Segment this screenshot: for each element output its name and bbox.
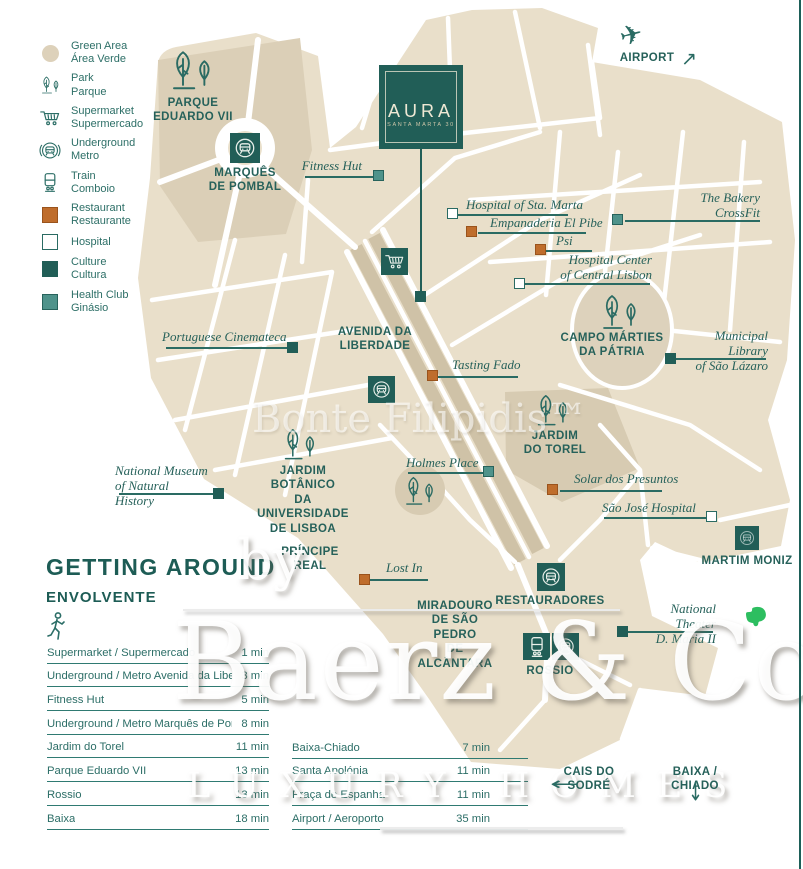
parque-eduardo-trees-icon [166, 50, 218, 95]
poi-label-solar: Solar dos Presuntos [574, 472, 684, 487]
area-label-jardim-botanico: JARDIM BOTÂNICO DA UNIVERSIDADE DE LISBO… [247, 464, 359, 536]
row-time: 7 min [462, 742, 490, 754]
walking-times-table-right: Baixa-Chiado7 min Santa Apolónia11 min P… [292, 735, 528, 830]
green-area-icon [38, 45, 62, 62]
rossio-train-icon [523, 633, 550, 660]
health-club-icon [38, 294, 62, 310]
aura-title: AURA [379, 102, 463, 120]
poi-line [520, 283, 650, 285]
legend-label: Park Parque [62, 72, 106, 98]
row-time: 11 min [457, 789, 490, 801]
walking-person-icon [45, 612, 69, 642]
poi-label-theater: National Theater D. Maria II [630, 602, 716, 647]
legend-item-restaurant: Restaurant Restaurante [38, 202, 178, 228]
torel-trees-icon [532, 394, 574, 430]
legend-item-underground: Underground Metro [38, 137, 178, 163]
restauradores-metro-icon [537, 563, 565, 591]
legend-item-train: Train Comboio [38, 170, 178, 196]
table-row: Underground / Metro Avenida da Liberdade… [47, 664, 269, 688]
legend-item-culture: Culture Cultura [38, 256, 178, 282]
poi-label-empanaderia: Empanaderia El Pibe [490, 216, 610, 231]
getting-around-title: GETTING AROUND [46, 556, 276, 579]
legend: Green Area Área Verde Park Parque Superm… [38, 40, 178, 315]
train-icon [38, 172, 62, 193]
area-label-airport: AIRPORT [614, 51, 680, 65]
area-label-marques-de-pombal: MARQUÊS DE POMBAL [197, 166, 293, 195]
legend-item-green-area: Green Area Área Verde [38, 40, 178, 66]
evernote-icon [744, 605, 768, 631]
poi-marker-empanaderia [466, 226, 477, 237]
area-label-avenida: AVENIDA DA LIBERDADE [299, 325, 451, 354]
poi-marker-sta-marta [447, 208, 458, 219]
supermarket-icon [38, 109, 62, 127]
poi-label-sao-jose: São José Hospital [602, 501, 702, 516]
poi-line [370, 579, 428, 581]
row-time: 5 min [241, 694, 269, 706]
area-label-parque-eduardo: PARQUE EDUARDO VII [138, 96, 248, 125]
row-time: 18 min [235, 813, 269, 825]
row-time: 11 min [236, 741, 269, 753]
poi-label-museum: National Museum of Natural History [115, 464, 211, 509]
principe-real-trees-icon [401, 476, 439, 509]
poi-marker-cinemateca [287, 342, 298, 353]
poi-label-hospital-center: Hospital Center of Central Lisbon [542, 253, 652, 283]
getting-around-subtitle: ENVOLVENTE [46, 590, 157, 605]
row-label: Underground / Metro Avenida da Liberdade [47, 670, 232, 682]
aura-stem-line [420, 149, 422, 293]
row-label: Praça de Espanha [292, 789, 385, 801]
walking-times-table-left: Supermarket / Supermercado1 min Undergro… [47, 640, 269, 830]
row-label: Supermarket / Supermercado [47, 647, 195, 659]
area-label-principe-real: PRÍNCIPE REAL [268, 545, 352, 574]
legend-label: Culture Cultura [62, 256, 106, 282]
row-label: Fitness Hut [47, 694, 104, 706]
poi-label-lost-in: Lost In [386, 561, 436, 576]
row-label: Jardim do Torel [47, 741, 124, 753]
poi-line [119, 493, 214, 495]
row-label: Underground / Metro Marquês de Pombal [47, 718, 232, 730]
neighborhood-map-page: Green Area Área Verde Park Parque Superm… [0, 0, 803, 869]
hospital-icon [38, 234, 62, 250]
poi-label-cinemateca: Portuguese Cinemateca [162, 330, 292, 345]
poi-marker-sao-jose [706, 511, 717, 522]
poi-marker-holmes [483, 466, 494, 477]
poi-label-holmes: Holmes Place [406, 456, 486, 471]
table-row: Airport / Aeroporto35 min [292, 806, 528, 830]
poi-marker-fitness-hut [373, 170, 384, 181]
poi-line [560, 490, 662, 492]
table-row: Fitness Hut5 min [47, 687, 269, 711]
poi-line [166, 347, 287, 349]
legend-label: Health Club Ginásio [62, 289, 128, 315]
row-time: 13 min [235, 789, 269, 801]
legend-label: Underground Metro [62, 137, 135, 163]
aura-location-marker [415, 291, 426, 302]
arrow-down-icon: ↓ [688, 778, 703, 807]
legend-item-hospital: Hospital [38, 234, 178, 250]
restaurant-icon [38, 207, 62, 223]
area-label-jardim-torel: JARDIM DO TOREL [514, 429, 596, 458]
poi-label-bakery: The Bakery CrossFit [646, 191, 760, 221]
culture-icon [38, 261, 62, 277]
table-row: Underground / Metro Marquês de Pombal8 m… [47, 711, 269, 735]
poi-line [408, 472, 484, 474]
row-label: Baixa [47, 813, 75, 825]
area-label-miradouro: MIRADOURO DE SÃO PEDRO DE ALCÂNTARA [412, 599, 498, 671]
legend-label: Restaurant Restaurante [62, 202, 131, 228]
botanico-trees-icon [279, 428, 321, 464]
row-time: 11 min [457, 765, 490, 777]
poi-label-library: Municipal Library of São Lázaro [672, 329, 768, 374]
arrow-up-right-icon: ↗ [681, 48, 697, 70]
row-time: 8 min [241, 718, 269, 730]
poi-marker-solar [547, 484, 558, 495]
marques-metro-icon [230, 133, 260, 163]
legend-label: Train Comboio [62, 170, 115, 196]
legend-item-health-club: Health Club Ginásio [38, 289, 178, 315]
table-row: Jardim do Torel11 min [47, 735, 269, 759]
poi-line [628, 631, 713, 633]
row-time: 13 min [235, 765, 269, 777]
rossio-metro-icon [552, 633, 579, 660]
poi-marker-library [665, 353, 676, 364]
table-row: Rossio13 min [47, 782, 269, 806]
row-time: 35 min [456, 813, 490, 825]
poi-label-fitness-hut: Fitness Hut [296, 159, 362, 174]
row-label: Santa Apolónia [292, 765, 368, 777]
table-row: Supermarket / Supermercado1 min [47, 640, 269, 664]
area-label-rossio: ROSSIO [519, 664, 581, 678]
poi-marker-bakery [612, 214, 623, 225]
row-time: 3 min [241, 670, 269, 682]
area-label-restauradores: RESTAURADORES [494, 594, 606, 608]
table-row: Praça de Espanha11 min [292, 782, 528, 806]
poi-line [305, 176, 373, 178]
poi-line [438, 376, 518, 378]
row-time: 1 min [241, 647, 269, 659]
martim-moniz-metro-icon [735, 526, 759, 550]
underground-icon [38, 140, 62, 161]
poi-marker-theater [617, 626, 628, 637]
poi-label-psi: Psi [556, 234, 596, 249]
table-row: Baixa-Chiado7 min [292, 735, 528, 759]
avenida-metro-icon [368, 376, 395, 403]
aura-logo-box: AURA SANTA MARTA 30 [379, 65, 463, 149]
legend-item-park: Park Parque [38, 72, 178, 98]
poi-marker-hospital-center [514, 278, 525, 289]
poi-label-tasting-fado: Tasting Fado [452, 358, 532, 373]
poi-line [625, 220, 760, 222]
legend-label: Supermarket Supermercado [62, 105, 143, 131]
table-row: Baixa18 min [47, 806, 269, 830]
poi-label-sta-marta: Hospital of Sta. Marta [466, 198, 596, 213]
poi-marker-museum [213, 488, 224, 499]
area-label-martim-moniz: MARTIM MONIZ [694, 554, 800, 568]
table-row: Santa Apolónia11 min [292, 759, 528, 783]
area-label-campo-marties: CAMPO MÁRTIES DA PÁTRIA [556, 331, 668, 360]
row-label: Parque Eduardo VII [47, 765, 146, 777]
poi-marker-tasting-fado [427, 370, 438, 381]
row-label: Rossio [47, 789, 82, 801]
poi-line [604, 517, 708, 519]
arrow-left-icon: ← [550, 774, 579, 795]
poi-line [676, 358, 766, 360]
table-row: Parque Eduardo VII13 min [47, 758, 269, 782]
row-label: Airport / Aeroporto [292, 813, 384, 825]
row-label: Baixa-Chiado [292, 742, 360, 754]
aura-subtitle: SANTA MARTA 30 [379, 123, 463, 129]
supermarket-map-icon [381, 248, 408, 275]
park-icon [38, 76, 62, 96]
page-right-border [799, 0, 801, 869]
legend-label: Hospital [62, 236, 111, 249]
campo-trees-icon [597, 294, 643, 334]
poi-marker-lost-in [359, 574, 370, 585]
legend-label: Green Area Área Verde [62, 40, 127, 66]
